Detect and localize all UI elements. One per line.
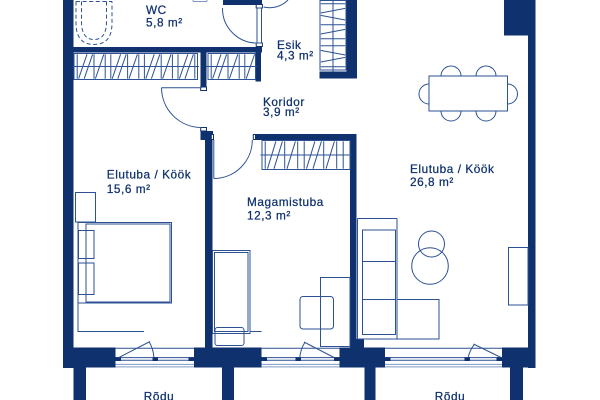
svg-text:4,3 m²: 4,3 m²: [277, 49, 314, 63]
svg-text:Elutuba / Köök: Elutuba / Köök: [410, 162, 494, 176]
svg-text:Rõdu: Rõdu: [144, 389, 174, 400]
svg-text:15,6 m²: 15,6 m²: [107, 182, 151, 196]
svg-text:Rõdu: Rõdu: [435, 389, 465, 400]
svg-text:5,8 m²: 5,8 m²: [146, 16, 183, 30]
svg-text:Magamistuba: Magamistuba: [247, 195, 324, 209]
svg-text:12,3 m²: 12,3 m²: [247, 209, 291, 223]
svg-text:26,8 m²: 26,8 m²: [410, 175, 454, 189]
svg-text:3,9 m²: 3,9 m²: [263, 105, 300, 119]
svg-text:Elutuba / Köök: Elutuba / Köök: [107, 167, 191, 181]
